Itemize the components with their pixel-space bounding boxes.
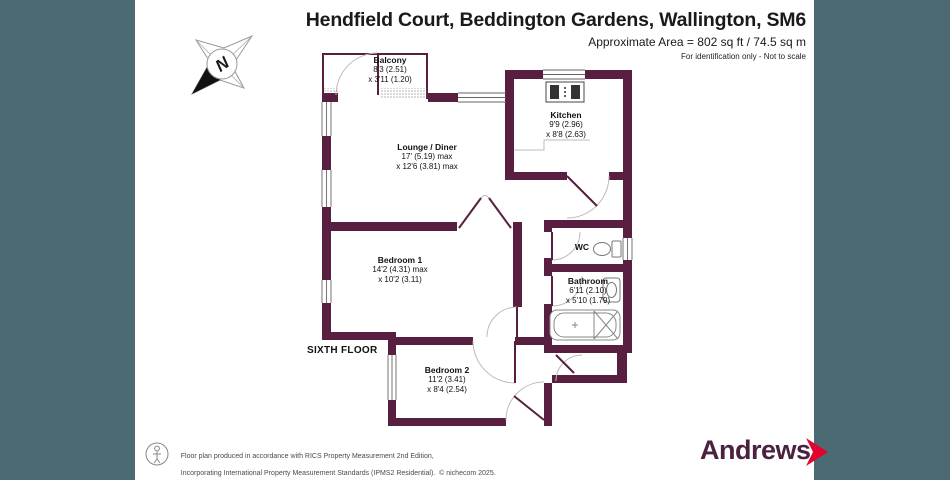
window-top-left bbox=[458, 93, 506, 102]
stove-icon bbox=[546, 82, 584, 102]
room-dimension: x 3'11 (1.20) bbox=[368, 75, 412, 85]
room-dimension: x 8'4 (2.54) bbox=[425, 385, 469, 395]
room-label-bedroom1: Bedroom 1 14'2 (4.31) max x 10'2 (3.11) bbox=[372, 255, 427, 284]
floorplan-screenshot: Hendfield Court, Beddington Gardens, Wal… bbox=[0, 0, 950, 480]
room-label-bathroom: Bathroom 6'11 (2.10) x 5'10 (1.79) bbox=[566, 276, 610, 305]
room-dimension: x 10'2 (3.11) bbox=[372, 275, 427, 285]
room-dimension: x 5'10 (1.79) bbox=[566, 296, 610, 306]
room-dimension: 14'2 (4.31) max bbox=[372, 265, 427, 275]
window-bedroom1 bbox=[322, 280, 331, 303]
room-dimension: 11'2 (3.41) bbox=[425, 375, 469, 385]
room-label-bedroom2: Bedroom 2 11'2 (3.41) x 8'4 (2.54) bbox=[425, 365, 469, 394]
room-label-lounge-diner: Lounge / Diner 17' (5.19) max x 12'6 (3.… bbox=[396, 142, 458, 171]
compass-icon: N bbox=[192, 36, 252, 94]
room-label-wc: WC bbox=[575, 242, 589, 252]
footer-line2: Incorporating International Property Mea… bbox=[181, 470, 496, 477]
floorplan-drawing: N bbox=[0, 0, 950, 480]
footer-legal-text: Floor plan produced in accordance with R… bbox=[173, 444, 496, 480]
bathtub-icon bbox=[550, 310, 620, 340]
toilet-icon bbox=[594, 241, 622, 257]
room-label-balcony: Balcony 8'3 (2.51) x 3'11 (1.20) bbox=[368, 55, 412, 84]
room-name: Lounge / Diner bbox=[396, 142, 458, 152]
room-dimension: x 8'8 (2.63) bbox=[546, 130, 586, 140]
room-name: Bathroom bbox=[566, 276, 610, 286]
kitchen-counter-outline bbox=[514, 140, 590, 150]
footer-line1: Floor plan produced in accordance with R… bbox=[181, 453, 434, 460]
room-name: Bedroom 2 bbox=[425, 365, 469, 375]
andrews-logo: Andrews bbox=[700, 435, 811, 466]
brand-name: Andrews bbox=[700, 435, 811, 466]
room-dimension: x 12'6 (3.81) max bbox=[396, 162, 458, 172]
room-name: Kitchen bbox=[546, 110, 586, 120]
measurement-person-icon bbox=[146, 443, 168, 465]
floor-level-label: SIXTH FLOOR bbox=[307, 345, 378, 356]
room-name: Balcony bbox=[368, 55, 412, 65]
room-dimension: 9'9 (2.96) bbox=[546, 120, 586, 130]
room-name: WC bbox=[575, 242, 589, 252]
window-lounge-2 bbox=[322, 170, 331, 207]
window-bedroom2 bbox=[388, 355, 396, 400]
window-kitchen bbox=[543, 70, 585, 79]
room-dimension: 6'11 (2.10) bbox=[566, 286, 610, 296]
room-dimension: 17' (5.19) max bbox=[396, 152, 458, 162]
room-name: Bedroom 1 bbox=[372, 255, 427, 265]
window-wc bbox=[623, 238, 632, 260]
window-lounge-1 bbox=[322, 102, 331, 136]
doors bbox=[336, 53, 609, 420]
room-dimension: 8'3 (2.51) bbox=[368, 65, 412, 75]
room-label-kitchen: Kitchen 9'9 (2.96) x 8'8 (2.63) bbox=[546, 110, 586, 139]
